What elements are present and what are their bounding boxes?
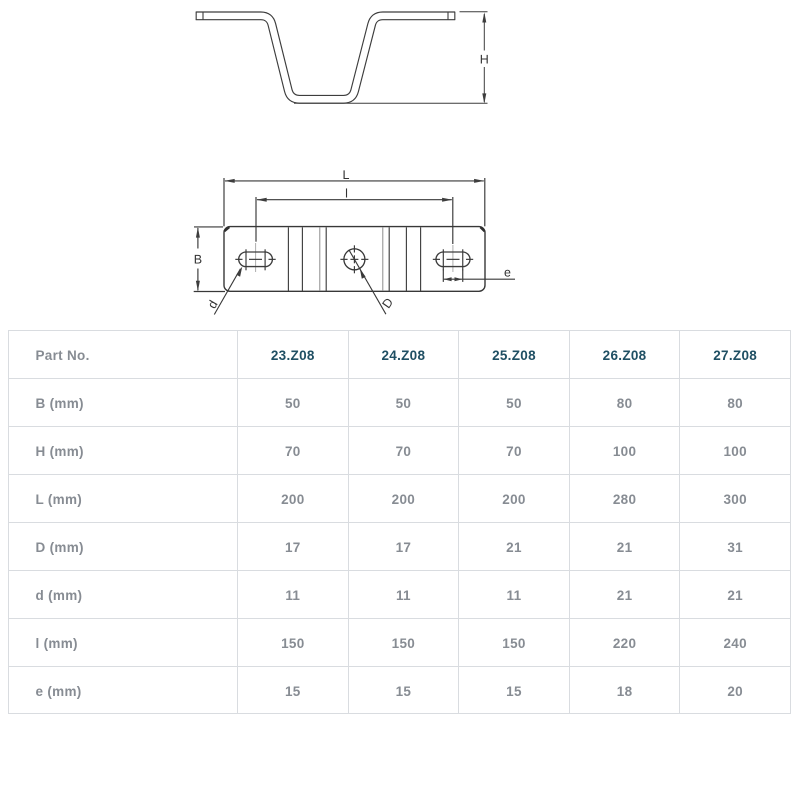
svg-text:l: l (345, 187, 348, 201)
svg-text:L: L (343, 168, 350, 182)
svg-text:e: e (504, 266, 511, 280)
svg-text:H: H (480, 52, 489, 66)
svg-text:B: B (194, 252, 202, 266)
svg-text:d: d (205, 298, 221, 311)
svg-text:D: D (379, 296, 396, 311)
